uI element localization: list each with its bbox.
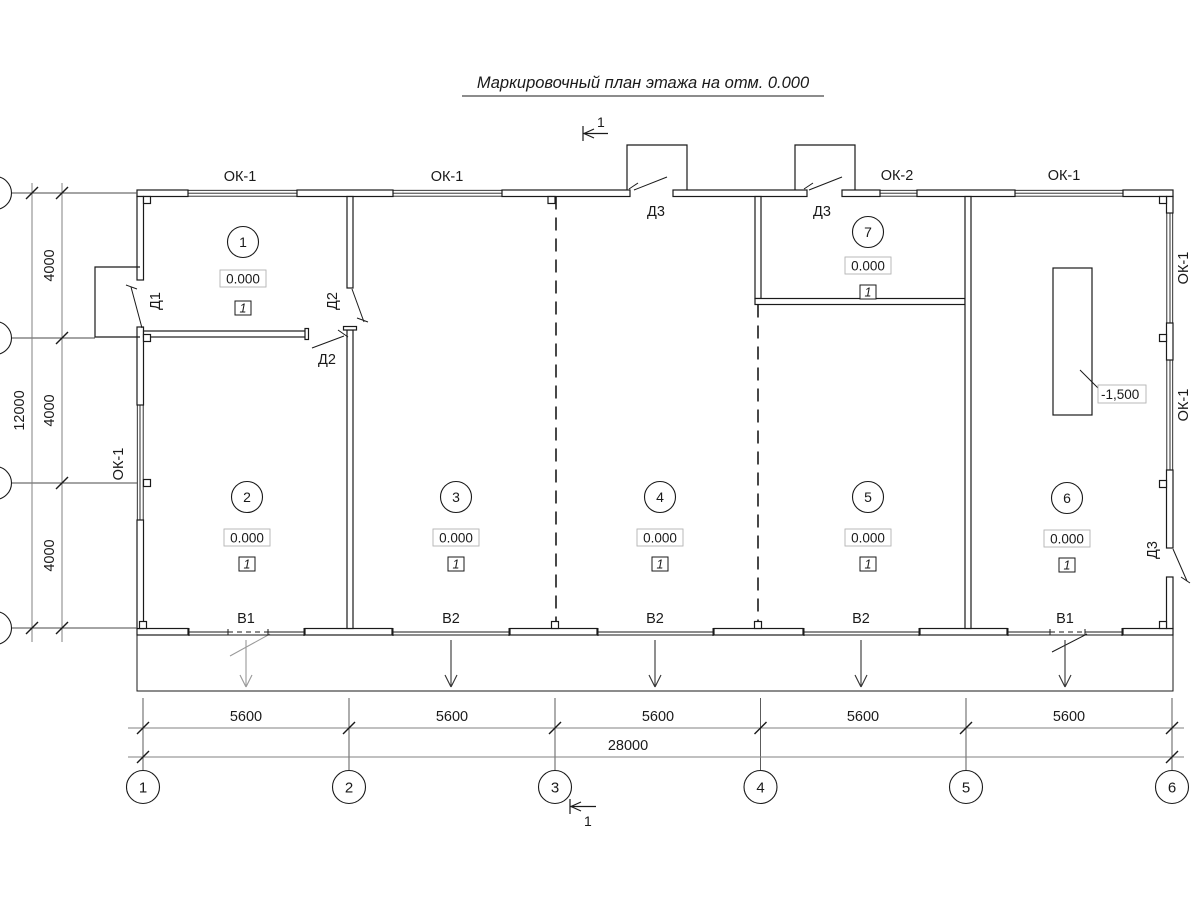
axis-6: 6 <box>1168 780 1176 797</box>
gate-label-v2-c: В2 <box>852 611 870 627</box>
floor-type: 1 <box>1064 559 1071 573</box>
room-marker-5: 5 0.000 1 <box>845 482 891 572</box>
window-ok1-top-2 <box>393 190 502 196</box>
window-ok1-right-1 <box>1167 213 1173 323</box>
window-label-ok1-right1: ОК-1 <box>1176 252 1192 285</box>
door-label-d1: Д1 <box>148 292 164 310</box>
entry-porch-left <box>95 267 140 337</box>
dim-row-2: 4000 <box>42 394 58 426</box>
inspection-pit: -1,500 <box>1053 268 1146 415</box>
floor-plan-drawing: Маркировочный план этажа на отм. 0.000 1… <box>0 0 1200 900</box>
axis-3: 3 <box>551 780 559 797</box>
window-ok1-top-1 <box>188 190 297 196</box>
window-label-ok1-right2: ОК-1 <box>1176 389 1192 422</box>
room-number: 4 <box>656 489 664 505</box>
room-marker-7: 7 0.000 1 <box>845 217 891 300</box>
window-label-ok1-top3: ОК-1 <box>1048 168 1081 184</box>
door-leaf-d3-vestibule1 <box>629 177 667 190</box>
axis-4: 4 <box>756 780 764 797</box>
window-label-ok1-top1: ОК-1 <box>224 169 257 185</box>
dim-bay-2: 5600 <box>436 709 468 725</box>
door-leaf-d1 <box>126 285 142 328</box>
room-number: 5 <box>864 489 872 505</box>
gate-label-v1-right: В1 <box>1056 611 1074 627</box>
section-label-bottom: 1 <box>584 813 592 829</box>
bottom-dimensions: 5600 5600 5600 5600 5600 28000 <box>128 698 1184 770</box>
door-label-d3-vestibule2: Д3 <box>813 204 831 220</box>
page-title: Маркировочный план этажа на отм. 0.000 <box>477 74 810 92</box>
dim-bay-5: 5600 <box>1053 709 1085 725</box>
door-leaf-d3-right <box>1173 549 1190 583</box>
room-elevation: 0.000 <box>230 531 264 546</box>
pit-elevation-label: -1,500 <box>1101 387 1139 402</box>
door-label-d3-vestibule1: Д3 <box>647 204 665 220</box>
window-label-ok1-top2: ОК-1 <box>431 169 464 185</box>
vestibule-1 <box>627 145 687 190</box>
section-label-top: 1 <box>597 114 605 130</box>
window-ok1-left <box>137 405 143 520</box>
window-ok2-top <box>880 190 917 196</box>
axis-5: 5 <box>962 780 970 797</box>
room-number: 3 <box>452 489 460 505</box>
partition-room5-6 <box>965 197 971 629</box>
gate-label-v2-b: В2 <box>646 611 664 627</box>
room-number: 6 <box>1063 490 1071 506</box>
room-elevation: 0.000 <box>1050 532 1084 547</box>
room-elevation: 0.000 <box>226 272 260 287</box>
gate-label-v1-left: В1 <box>237 611 255 627</box>
dim-row-3: 4000 <box>42 539 58 571</box>
door-leaf-d2-upper <box>352 289 368 322</box>
room-marker-6: 6 0.000 1 <box>1044 483 1090 573</box>
row-axis-bubble <box>0 612 12 645</box>
floor-type: 1 <box>244 558 251 572</box>
dim-total-height: 12000 <box>12 390 28 430</box>
window-label-ok1-left: ОК-1 <box>111 448 127 481</box>
drawing-title: Маркировочный план этажа на отм. 0.000 <box>462 74 824 96</box>
room-elevation: 0.000 <box>851 259 885 274</box>
column-axis-bubbles: 1 2 3 4 5 6 <box>127 771 1189 804</box>
room-elevation: 0.000 <box>851 531 885 546</box>
room-marker-4: 4 0.000 1 <box>637 482 683 572</box>
floor-type: 1 <box>657 558 664 572</box>
section-mark-bottom: 1 <box>570 799 596 829</box>
floor-type: 1 <box>453 558 460 572</box>
exit-arrows <box>240 640 1071 687</box>
door-label-d3-right: Д3 <box>1145 541 1161 559</box>
dim-total-width: 28000 <box>608 738 648 754</box>
row-axis-bubble <box>0 177 12 210</box>
door-label-d2-upper: Д2 <box>325 292 341 310</box>
axis-2: 2 <box>345 780 353 797</box>
dim-bay-1: 5600 <box>230 709 262 725</box>
window-ok1-top-3 <box>1015 190 1123 196</box>
floor-type: 1 <box>865 558 872 572</box>
room-number: 1 <box>239 234 247 250</box>
floor-type: 1 <box>865 286 872 300</box>
room-marker-2: 2 0.000 1 <box>224 482 270 572</box>
partition-room1-bottom <box>144 329 309 340</box>
door-leaf-d3-vestibule2 <box>804 177 842 190</box>
dim-row-1: 4000 <box>42 249 58 281</box>
door-leaf-d2-lower <box>312 330 348 348</box>
partition-room1-right <box>344 197 357 629</box>
row-axis-bubble <box>0 467 12 500</box>
room-number: 7 <box>864 224 872 240</box>
room-elevation: 0.000 <box>643 531 677 546</box>
gate-label-v2-a: В2 <box>442 611 460 627</box>
room-number: 2 <box>243 489 251 505</box>
room-elevation: 0.000 <box>439 531 473 546</box>
axis-1: 1 <box>139 780 147 797</box>
floor-type: 1 <box>240 302 247 316</box>
left-dimensions: 4000 4000 4000 12000 <box>0 177 137 645</box>
window-label-ok2-top: ОК-2 <box>881 168 914 184</box>
window-ok1-right-2 <box>1167 360 1173 470</box>
door-label-d2-lower: Д2 <box>318 352 336 368</box>
row-axis-bubble <box>0 322 12 355</box>
section-mark-top: 1 <box>583 114 608 141</box>
room-marker-1: 1 0.000 1 <box>220 227 266 316</box>
room-marker-3: 3 0.000 1 <box>433 482 479 572</box>
dim-bay-4: 5600 <box>847 709 879 725</box>
dim-bay-3: 5600 <box>642 709 674 725</box>
